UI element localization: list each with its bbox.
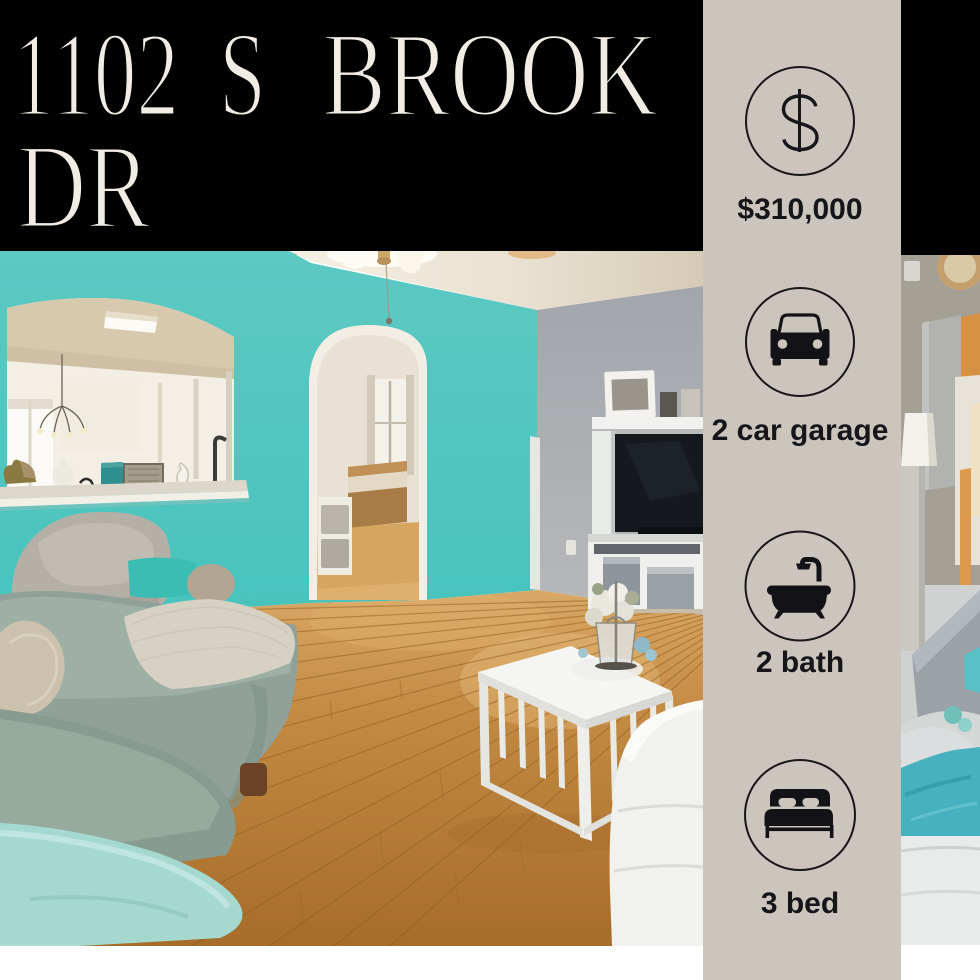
svg-text:$310,000: $310,000 xyxy=(737,193,862,226)
svg-text:3 bed: 3 bed xyxy=(761,887,839,920)
svg-text:S: S xyxy=(219,8,266,142)
svg-text:BROOK: BROOK xyxy=(322,8,658,142)
svg-text:DR: DR xyxy=(17,120,150,253)
svg-text:2 bath: 2 bath xyxy=(756,646,844,679)
svg-text:2 car garage: 2 car garage xyxy=(712,414,889,447)
